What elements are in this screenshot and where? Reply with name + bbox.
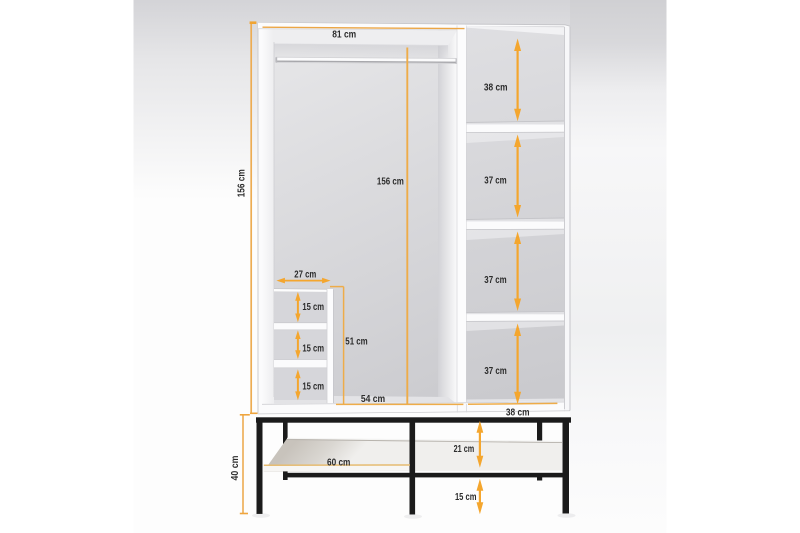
svg-text:15 cm: 15 cm (302, 343, 324, 354)
svg-text:15 cm: 15 cm (455, 492, 477, 503)
svg-text:38 cm: 38 cm (484, 83, 508, 94)
svg-text:51 cm: 51 cm (345, 337, 367, 348)
svg-text:15 cm: 15 cm (302, 382, 324, 393)
svg-text:156 cm: 156 cm (377, 177, 404, 188)
svg-text:60 cm: 60 cm (327, 458, 350, 469)
svg-text:54 cm: 54 cm (361, 394, 385, 405)
svg-text:40 cm: 40 cm (230, 455, 241, 480)
svg-text:21 cm: 21 cm (454, 444, 475, 455)
svg-text:37 cm: 37 cm (484, 176, 506, 187)
svg-text:37 cm: 37 cm (484, 275, 506, 286)
svg-text:156 cm: 156 cm (237, 169, 248, 197)
svg-text:15 cm: 15 cm (302, 302, 324, 313)
svg-text:27 cm: 27 cm (294, 270, 316, 281)
svg-text:81 cm: 81 cm (332, 29, 356, 40)
svg-text:38 cm: 38 cm (506, 408, 530, 419)
svg-text:37 cm: 37 cm (484, 366, 506, 377)
